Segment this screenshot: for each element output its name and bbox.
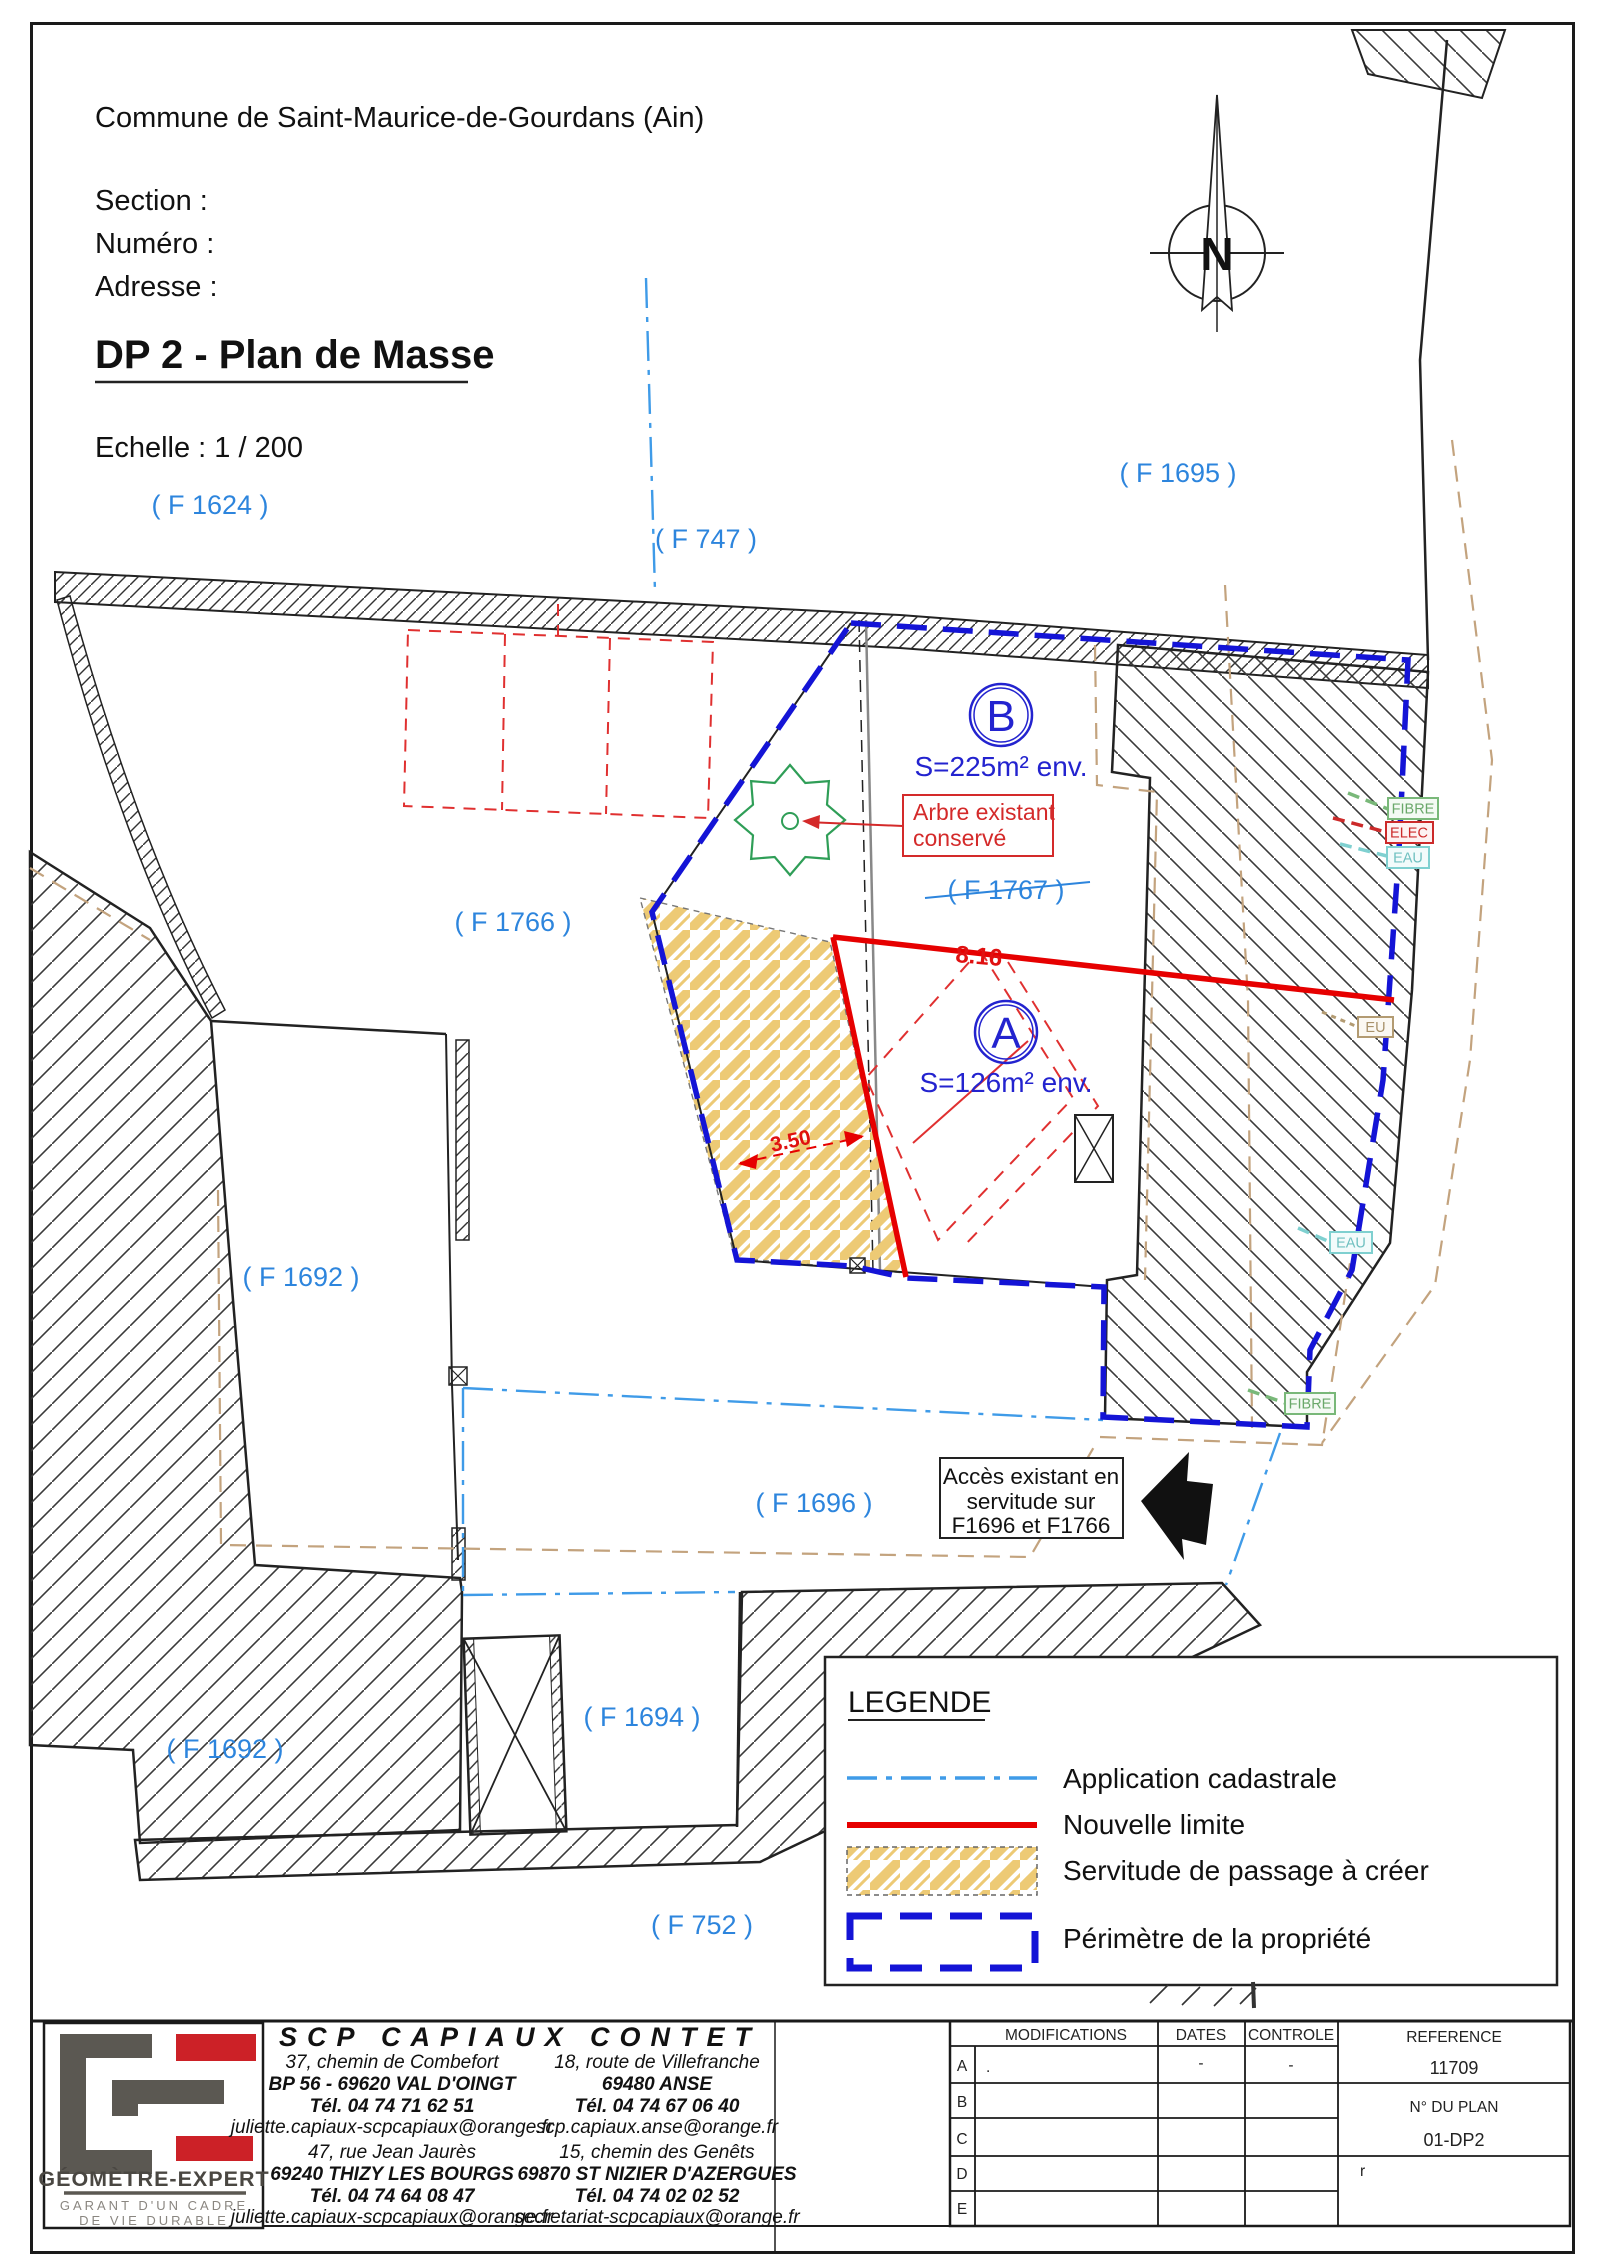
- parcel-label-f1766: ( F 1766 ): [454, 907, 571, 937]
- row-a-dates-mark: -: [1198, 2055, 1203, 2072]
- modifications-table: MODIFICATIONS DATES CONTROLE REFERENCE 1…: [950, 2021, 1570, 2226]
- north-arrow: N: [1150, 95, 1284, 332]
- legend-item-cadastral: Application cadastrale: [1063, 1763, 1337, 1794]
- plan-page: FIBRE ELEC EAU EU EAU FIBRE: [0, 0, 1600, 2264]
- col-dates: DATES: [1176, 2027, 1227, 2044]
- commune-title: Commune de Saint-Maurice-de-Gourdans (Ai…: [95, 102, 704, 134]
- col-reference: REFERENCE: [1406, 2029, 1502, 2046]
- building-crossed: [464, 1635, 567, 1834]
- section-label: Section :: [95, 185, 208, 217]
- row-letter-c: C: [956, 2131, 967, 2148]
- row-letter-a: A: [957, 2058, 968, 2075]
- row-a-controle-mark: -: [1288, 2057, 1293, 2074]
- logo-brand: GÉOMÈTRE-EXPERT: [38, 2166, 269, 2191]
- access-note: Accès existant en servitude sur F1696 et…: [940, 1452, 1213, 1560]
- legend-servitude-sample: [847, 1847, 1037, 1895]
- parcel-f1692-top-border: [211, 1021, 446, 1034]
- zone-b-letter: B: [986, 692, 1015, 741]
- row-letter-d: D: [956, 2166, 967, 2183]
- office1-tel: Tél. 04 74 71 62 51: [310, 2096, 475, 2117]
- office2-tel: Tél. 04 74 67 06 40: [575, 2096, 740, 2117]
- office1-street: 37, chemin de Combefort: [285, 2052, 499, 2073]
- hatched-wedge-top-right: [1352, 30, 1505, 98]
- office2-city: 69480 ANSE: [602, 2074, 714, 2095]
- eau-bottom-label: EAU: [1336, 1236, 1366, 1252]
- office2-street: 18, route de Villefranche: [554, 2052, 760, 2073]
- parcel-label-f747: ( F 747 ): [655, 524, 757, 554]
- legend-item-newlimit: Nouvelle limite: [1063, 1809, 1245, 1840]
- office3-city: 69240 THIZY LES BOURGS: [270, 2164, 514, 2185]
- tree-symbol: [735, 765, 845, 875]
- footer: GÉOMÈTRE-EXPERT GARANT D'UN CADRE DE VIE…: [30, 2021, 1575, 2254]
- crossed-box-right: [1075, 1115, 1113, 1182]
- company-name: SCP CAPIAUX CONTET: [279, 2022, 761, 2052]
- office4-street: 15, chemin des Genêts: [559, 2142, 755, 2163]
- parcel-label-f1695: ( F 1695 ): [1119, 458, 1236, 488]
- parcel-label-f1694: ( F 1694 ): [583, 1702, 700, 1732]
- zone-b-marker: B: [970, 684, 1032, 746]
- parcel-label-f1692-lower: ( F 1692 ): [166, 1734, 283, 1764]
- numero-label: Numéro :: [95, 228, 214, 260]
- zone-a-area: S=126m² env.: [919, 1067, 1092, 1098]
- elec-label: ELEC: [1390, 826, 1428, 842]
- map-area: FIBRE ELEC EAU EU EAU FIBRE: [30, 30, 1505, 1940]
- office1-email: juliette.capiaux-scpcapiaux@orange.fr: [228, 2117, 554, 2138]
- parcel-label-f1692-upper: ( F 1692 ): [242, 1262, 359, 1292]
- fibre-bottom-label: FIBRE: [1289, 1397, 1332, 1413]
- red-dashed-diamonds: [866, 950, 1098, 1248]
- legend-item-perimeter: Périmètre de la propriété: [1063, 1923, 1371, 1954]
- north-letter: N: [1200, 228, 1233, 280]
- eu-label: EU: [1365, 1020, 1385, 1036]
- parcel-label-f1624: ( F 1624 ): [151, 490, 268, 520]
- offices: 37, chemin de Combefort BP 56 - 69620 VA…: [228, 2052, 801, 2228]
- hatched-mass-left: [30, 852, 462, 1843]
- col-modifications: MODIFICATIONS: [1005, 2027, 1127, 2044]
- reference-value: 11709: [1430, 2058, 1479, 2078]
- page-title: DP 2 - Plan de Masse: [95, 333, 494, 377]
- office3-street: 47, rue Jean Jaurès: [308, 2142, 476, 2163]
- zone-b-area: S=225m² env.: [914, 751, 1087, 782]
- adresse-label: Adresse :: [95, 271, 218, 303]
- fence-post-upper: [456, 1040, 469, 1240]
- office3-email: juliette.capiaux-scpcapiaux@orange.fr: [228, 2207, 554, 2228]
- row-letter-b: B: [957, 2094, 967, 2111]
- access-line1: Accès existant en: [943, 1464, 1119, 1489]
- plan-number-label: N° DU PLAN: [1410, 2099, 1499, 2116]
- boundary-line-right: [1420, 40, 1447, 660]
- fibre-top-label: FIBRE: [1392, 802, 1435, 818]
- plan-canvas: FIBRE ELEC EAU EU EAU FIBRE: [0, 0, 1600, 2264]
- tree-note-line2: conservé: [913, 825, 1006, 851]
- tree-note-line1: Arbre existant: [913, 799, 1056, 825]
- access-line2: servitude sur: [967, 1489, 1096, 1514]
- office4-email: secretariat-scpcapiaux@orange.fr: [514, 2207, 800, 2228]
- row-letter-e: E: [957, 2201, 967, 2218]
- dimension-816-label: 8.16: [954, 941, 1003, 972]
- access-line3: F1696 et F1766: [952, 1513, 1111, 1538]
- plan-number-value: 01-DP2: [1423, 2130, 1484, 2150]
- office2-email: scp.capiaux.anse@orange.fr: [536, 2117, 779, 2138]
- office1-city: BP 56 - 69620 VAL D'OINGT: [268, 2074, 516, 2095]
- zone-a-marker: A: [975, 1001, 1037, 1063]
- scale-label: Echelle : 1 / 200: [95, 432, 303, 464]
- legend: LEGENDE Application cadastrale Nouvelle …: [825, 1657, 1557, 1985]
- parcel-label-f1696: ( F 1696 ): [755, 1488, 872, 1518]
- parcel-label-f752: ( F 752 ): [651, 1910, 753, 1940]
- header: Commune de Saint-Maurice-de-Gourdans (Ai…: [95, 102, 704, 464]
- col-controle: CONTROLE: [1248, 2027, 1334, 2044]
- zone-a-letter: A: [991, 1009, 1021, 1058]
- office4-city: 69870 ST NIZIER D'AZERGUES: [517, 2164, 796, 2185]
- legend-item-servitude: Servitude de passage à créer: [1063, 1855, 1429, 1886]
- stray-mark: r: [1360, 2163, 1365, 2180]
- office3-tel: Tél. 04 74 64 08 47: [310, 2186, 476, 2207]
- row-a-modifications-mark: .: [986, 2059, 990, 2076]
- logo-tagline1: GARANT D'UN CADRE: [60, 2198, 248, 2213]
- office4-tel: Tél. 04 74 02 02 52: [575, 2186, 740, 2207]
- eau-top-label: EAU: [1393, 851, 1423, 867]
- parcel-label-f1767-group: ( F 1767 ): [925, 875, 1090, 905]
- access-arrow-icon: [1141, 1452, 1213, 1560]
- legend-title: LEGENDE: [848, 1686, 991, 1719]
- logo-tagline2: DE VIE DURABLE: [79, 2213, 229, 2228]
